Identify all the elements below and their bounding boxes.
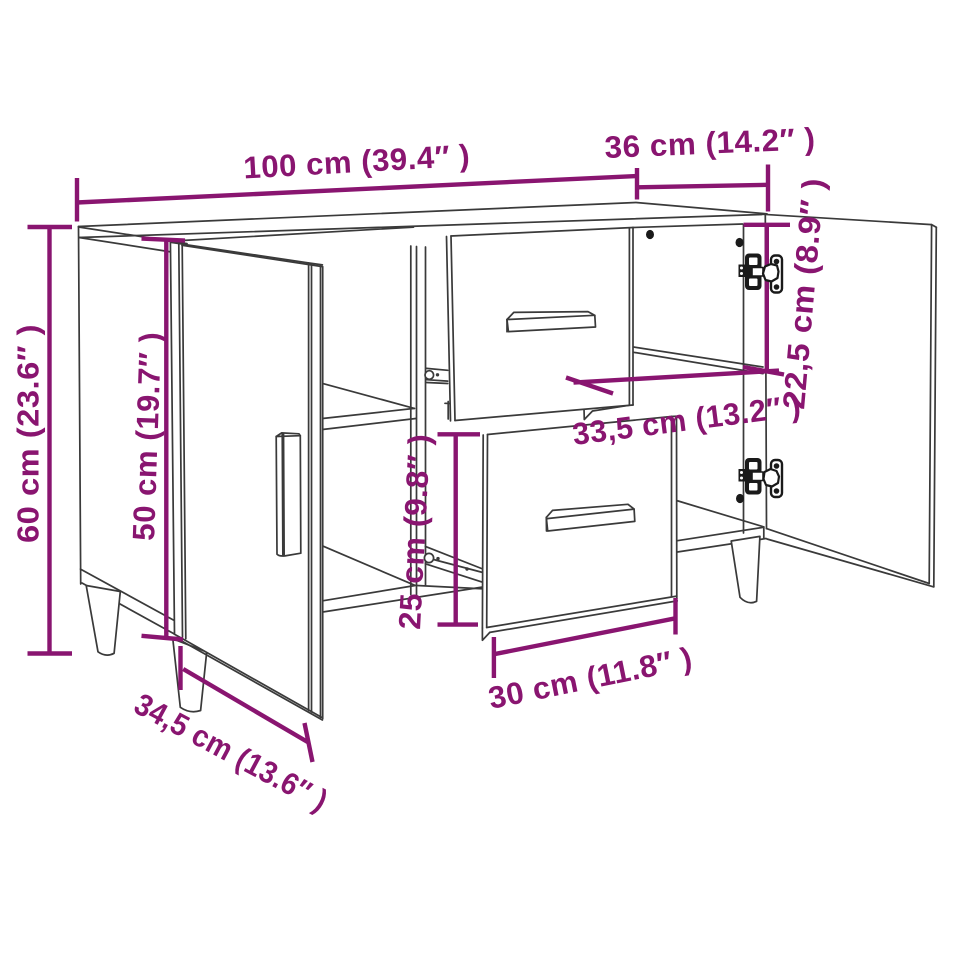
svg-text:50 cm (19.7″ ): 50 cm (19.7″ ) xyxy=(126,331,168,541)
svg-text:25 cm (9.8″ ): 25 cm (9.8″ ) xyxy=(392,433,437,631)
svg-text:60 cm (23.6″ ): 60 cm (23.6″ ) xyxy=(11,324,46,543)
svg-text:36 cm (14.2″ ): 36 cm (14.2″ ) xyxy=(604,121,816,165)
svg-text:100 cm (39.4″ ): 100 cm (39.4″ ) xyxy=(242,138,471,186)
